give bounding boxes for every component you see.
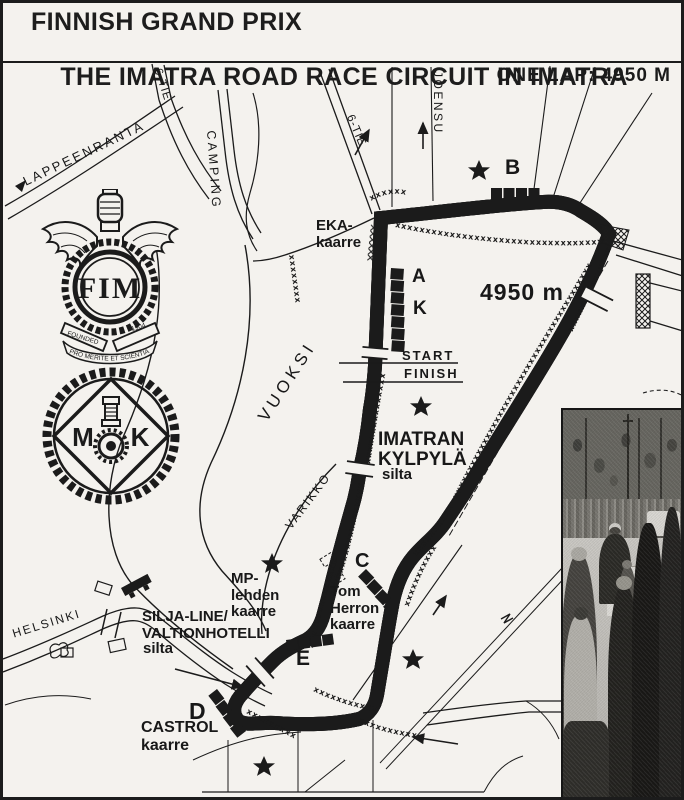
star-icon [261,553,283,573]
star-icon [410,396,432,416]
fim-logo: FIM FOUNDED 1904 PRO MERITE ET SCIENTIA [35,189,185,367]
photo-spectator-head [616,576,632,590]
photo-spectator [632,523,665,799]
label-imatran-kylpyla: IMATRAN KYLPYLÄ [378,430,467,470]
spark-plug-icon [95,397,127,462]
photo-rider-helmet [609,523,621,534]
label-grandstand-e: E [296,647,310,670]
photo-tree-trunk [638,418,640,535]
label-tom-herron-kaarre: Tom Herron kaarre [330,584,379,634]
mk-letter-m: M [72,422,94,452]
photo-crowd [563,499,684,538]
label-grandstand-c: C [355,550,369,572]
photo-spectator [608,585,641,799]
photo-car [647,511,681,538]
mk-logo: M K [36,361,186,511]
photo-inset [561,408,684,800]
label-finish: FINISH [404,367,459,381]
photo-tree-trunk [585,418,587,535]
label-lap-length: 4950 m [480,280,564,305]
label-castrol-kaarre: CASTROL kaarre [141,719,218,754]
label-grandstand-b: B [505,156,520,179]
label-silja-valtionhotelli: SILJA-LINE/ VALTIONHOTELLI [142,609,270,642]
grandstand-a-k [385,268,410,352]
photo-spectator [659,507,684,799]
label-start: START [402,349,454,363]
photo-spectator [564,616,597,799]
photo-rider [631,589,658,643]
label-kylpyla-silta: silta [382,467,412,484]
star-icon [402,649,424,669]
star-icon [253,756,275,776]
photo-spectator-head [571,547,587,561]
label-eka-kaarre: EKA- kaarre [316,218,361,251]
label-grandstand-k: K [413,299,427,320]
photo-trees [563,410,684,511]
photo-spectator [561,554,597,799]
photo-tree-trunk [660,418,662,535]
photo-road [563,538,684,799]
label-silja-silta: silta [143,641,173,658]
photo-spectator [563,721,609,799]
west-crossing-icon [362,347,389,359]
fim-letters: FIM [78,272,142,305]
star-icon [468,160,490,180]
scanned-circuit-map-page: FINNISH GRAND PRIX THE IMATRA ROAD RACE … [0,0,684,800]
photo-light-pole-icon [627,414,629,535]
hotel-building-icon [121,574,154,600]
label-joensu: JOENSU [431,71,444,135]
photo-rider-helmet [638,573,649,583]
label-grandstand-a: A [412,267,426,288]
photo-spectator-head [622,560,632,569]
mk-letter-k: K [131,422,150,452]
photo-banner [607,566,684,617]
photo-spectator-head [574,607,588,620]
photo-spectator [619,566,636,636]
photo-rider [599,534,630,604]
